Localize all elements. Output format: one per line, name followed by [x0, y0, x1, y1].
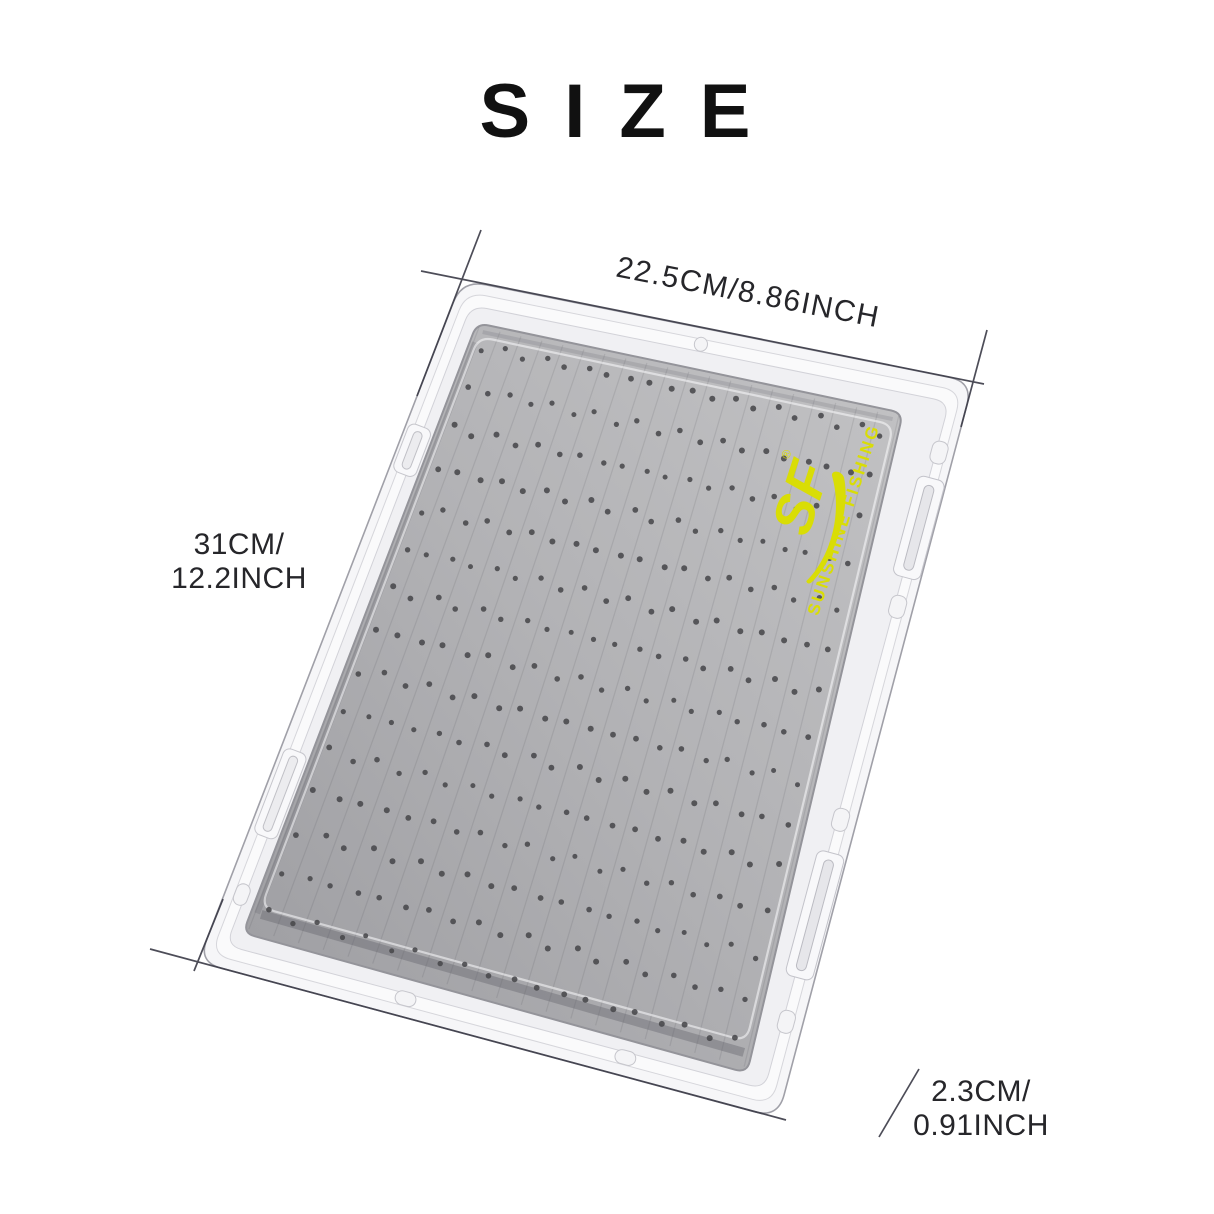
depth-dimension-line1: 2.3CM/ [913, 1077, 1049, 1107]
size-infographic: SIZE SF ® SUNSHINE FISHING 22.5CM/8.86IN… [0, 0, 1214, 1214]
height-dimension-line2: 12.2INCH [171, 564, 307, 594]
product-photo: SF ® SUNSHINE FISHING [0, 0, 1214, 1214]
depth-dimension-label: 2.3CM/ 0.91INCH [913, 1077, 1049, 1141]
height-dimension-line1: 31CM/ [171, 530, 307, 560]
right-extension-line-top [961, 330, 987, 427]
height-dimension-label: 31CM/ 12.2INCH [171, 530, 307, 594]
depth-dimension-line2: 0.91INCH [913, 1111, 1049, 1141]
